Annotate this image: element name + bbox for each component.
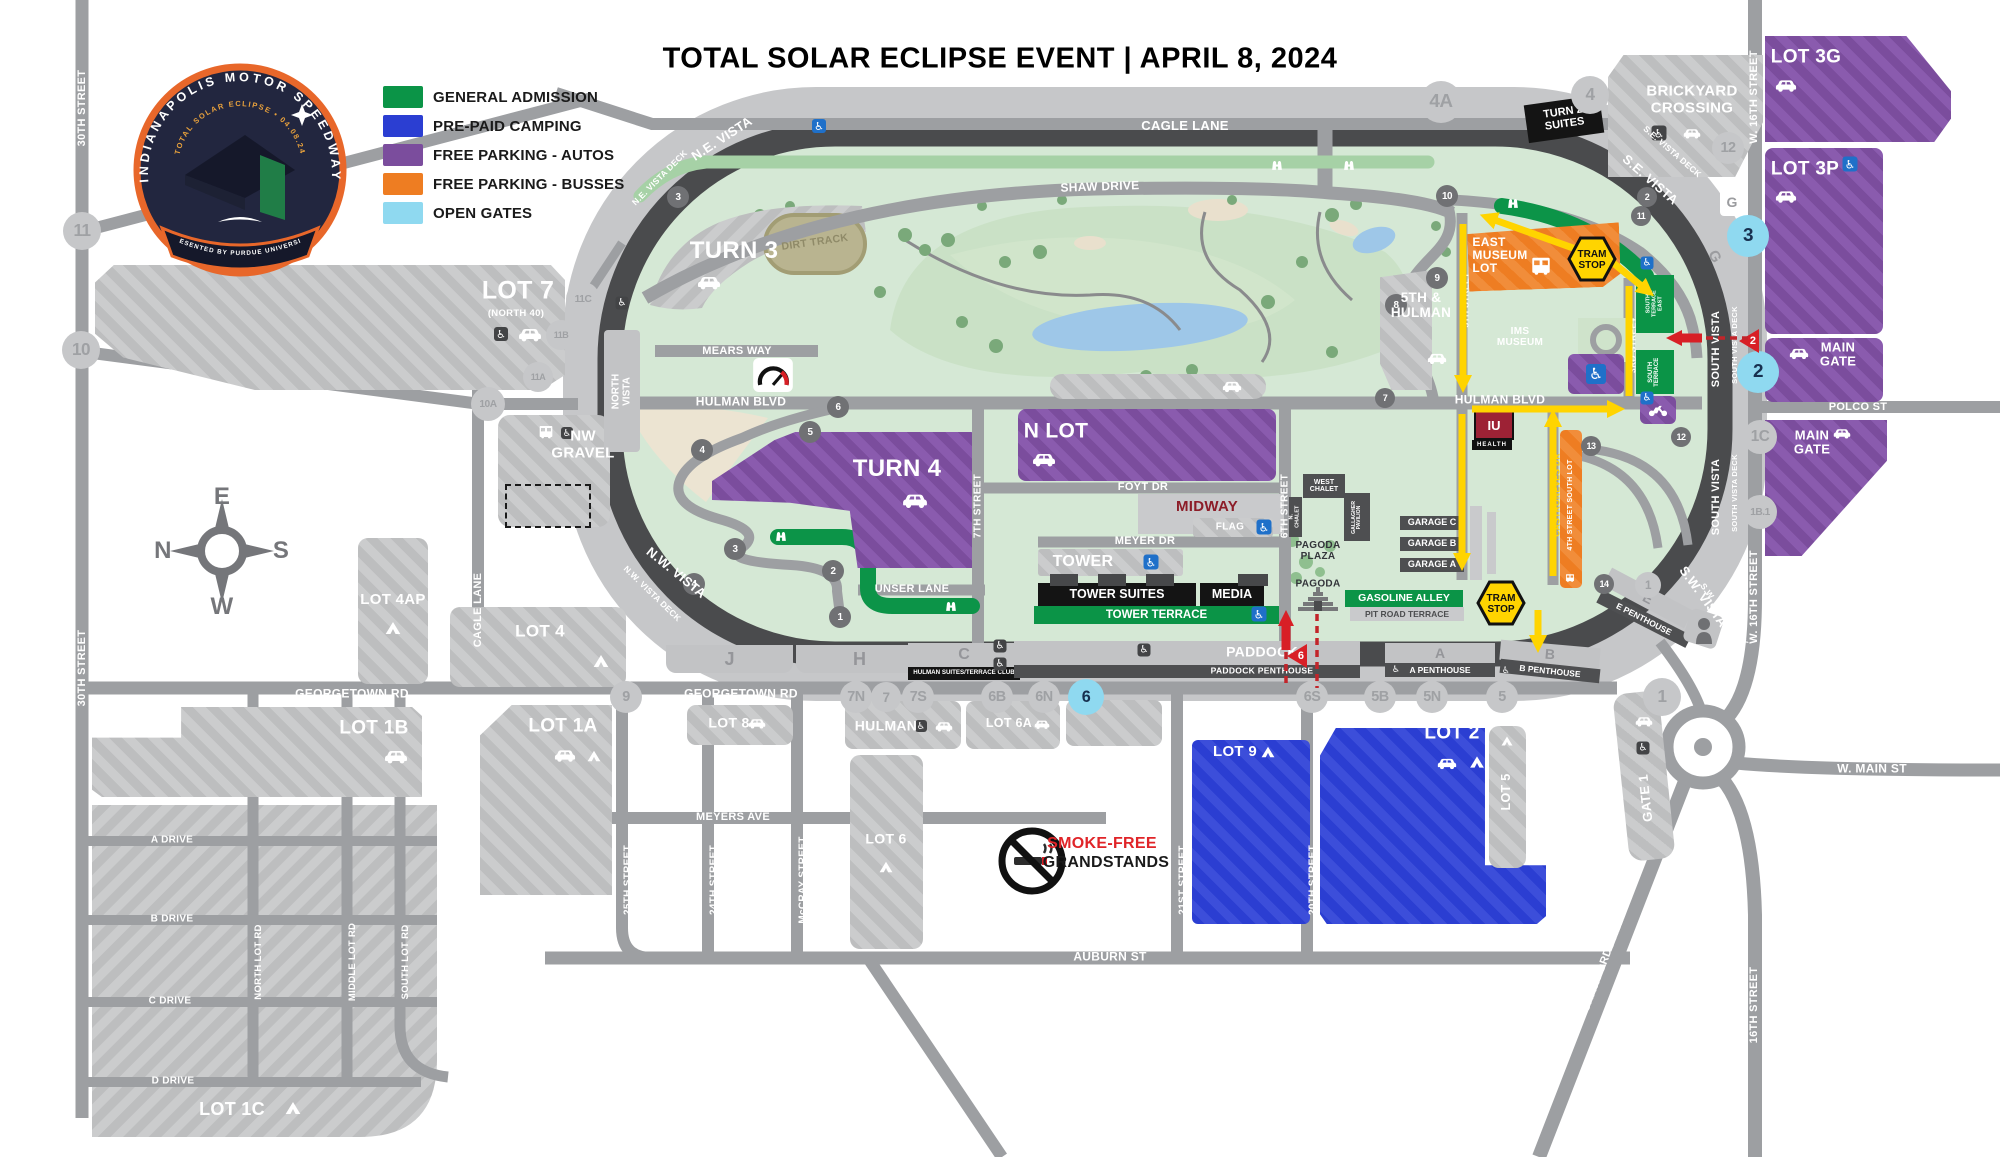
tent-icon <box>1261 746 1275 758</box>
bus-icon <box>1565 573 1575 583</box>
bar-a-penthouse-label: A PENTHOUSE <box>1409 666 1470 675</box>
stand-b-label: B <box>1544 646 1555 662</box>
binoc-icon <box>945 601 958 612</box>
suite-bump-2 <box>1098 574 1126 586</box>
tgate-2-label: 2 <box>1645 192 1650 202</box>
label-middle-lot-rd: MIDDLE LOT RD <box>348 923 358 1001</box>
bar-garage-c: GARAGE C <box>1400 516 1464 530</box>
nw-gravel-dash-box <box>505 484 591 528</box>
label-tower: TOWER <box>1053 553 1114 571</box>
gauge-icon <box>753 358 793 392</box>
gate-5b-label: 5B <box>1371 689 1388 705</box>
label-w16-top: W. 16TH STREET <box>1748 50 1760 143</box>
gate-6n: 6N <box>1028 681 1060 713</box>
gate-9-label: 9 <box>622 689 630 705</box>
binoc-top-2 <box>1343 160 1356 171</box>
label-a-drive: A DRIVE <box>151 835 193 846</box>
label-castroneves: CASTRONEVES DR <box>1552 453 1561 537</box>
legend-label-1: PRE-PAID CAMPING <box>433 118 582 135</box>
chip-lot-3p: ♿ <box>1843 157 1858 172</box>
tgate-13: 13 <box>1581 436 1601 456</box>
gate-4a-label: 4A <box>1429 91 1452 113</box>
tgate-9-label: 9 <box>1435 273 1440 284</box>
gate-5n: 5N <box>1416 681 1448 713</box>
tgate-7-label: 7 <box>1383 393 1388 403</box>
label-n-lot: N LOT <box>1024 419 1089 442</box>
label-5th-hulman: 5TH & HULMAN <box>1391 291 1451 321</box>
gate-1c: 1C <box>1743 420 1777 454</box>
binoc-top-1 <box>1271 160 1284 171</box>
car-icon <box>384 748 408 764</box>
gate-1-label: 1 <box>1657 687 1666 707</box>
car-5th-hulman <box>1427 351 1447 364</box>
label-7th-street: 7TH STREET <box>973 474 984 538</box>
tgate-14: 14 <box>1594 574 1614 594</box>
page-title: TOTAL SOLAR ECLIPSE EVENT | APRIL 8, 202… <box>663 43 1338 76</box>
label-ims-museum: IMS MUSEUM <box>1497 326 1543 348</box>
chip-c-stand-1: ♿ <box>994 640 1007 653</box>
compass-w: W <box>211 594 234 620</box>
stand-north-vista-label: NORTH VISTA <box>612 373 633 409</box>
tgate-10: 10 <box>1436 185 1458 207</box>
gate-5b: 5B <box>1364 681 1396 713</box>
flag-gate-2: 2 <box>1739 329 1759 353</box>
chip-north-vista: ♿ <box>616 297 629 310</box>
car-icon <box>748 717 766 729</box>
label-25th: 25TH STREET <box>623 845 634 915</box>
car-lot-3g <box>1775 78 1797 93</box>
tgate-3: 3 <box>667 186 689 208</box>
car-icon <box>1032 451 1056 467</box>
label-d-drive: D DRIVE <box>152 1076 195 1087</box>
gate-3-open: 3 <box>1727 215 1769 257</box>
car-icon <box>902 491 928 508</box>
label-turn-3: TURN 3 <box>690 238 778 264</box>
tgate-3b-label: 3 <box>733 544 738 555</box>
label-lot-4ap: LOT 4AP <box>360 592 425 609</box>
gate-4-label: 4 <box>1585 85 1594 105</box>
gauge-icon <box>753 358 793 392</box>
gate-10-label: 10 <box>72 340 90 360</box>
tgate-2b-label: 2 <box>831 566 836 577</box>
label-21st: 21ST STREET <box>1178 845 1189 914</box>
label-20th: 20TH STREET <box>1308 845 1319 915</box>
car-lot-7 <box>518 326 542 342</box>
label-south-vista-2: SOUTH VISTA <box>1710 459 1722 535</box>
car-icon <box>1833 427 1851 439</box>
gate-11c-label: 11C <box>575 294 592 305</box>
label-lot-6: LOT 6 <box>865 831 906 846</box>
label-lot-1b: LOT 1B <box>339 719 408 740</box>
chip-flag-stand: ♿ <box>1257 520 1272 535</box>
car-main-gate-upper <box>1789 346 1809 359</box>
label-dirt-track: DIRT TRACK <box>781 233 849 254</box>
bar-south-terrace-east-label: SOUTH TERRACE EAST <box>1646 291 1663 318</box>
legend: GENERAL ADMISSIONPRE-PAID CAMPINGFREE PA… <box>383 86 624 231</box>
bus-4th-street <box>1565 573 1575 583</box>
label-nw-gravel: NW GRAVEL <box>551 429 614 462</box>
legend-label-4: OPEN GATES <box>433 205 532 222</box>
gate-11a: 11A <box>523 362 553 392</box>
car-lakeside <box>1222 379 1242 392</box>
bar-west-chalet-label: WEST CHALET <box>1310 479 1338 494</box>
tent-icon <box>385 621 401 634</box>
label-georgetown-2: GEORGETOWN RD <box>684 687 798 700</box>
moto-lot-icon <box>1648 403 1668 416</box>
car-lot-1b <box>384 748 408 764</box>
label-cagle-top: CAGLE LANE <box>1141 119 1229 133</box>
bus-icon <box>1530 255 1552 277</box>
chip-lot-7: ♿ <box>494 327 508 341</box>
car-gate-1-lot <box>1635 715 1653 727</box>
bar-south-terrace: SOUTH TERRACE <box>1636 350 1674 394</box>
label-30th-street-top: 30TH STREET <box>76 70 88 147</box>
label-lot-4: LOT 4 <box>515 623 565 642</box>
label-north-lot-rd: NORTH LOT RD <box>254 924 264 999</box>
gate-11-label: 11 <box>73 221 90 241</box>
label-east-museum-lot: EAST MUSEUM LOT <box>1472 236 1527 276</box>
gate-6n-label: 6N <box>1035 689 1052 705</box>
chip-paddock: ♿ <box>1138 644 1151 657</box>
gate-2-open: 2 <box>1737 351 1779 393</box>
binoc-unser <box>945 601 958 612</box>
tgate-13-label: 13 <box>1586 441 1595 451</box>
label-lot-7: LOT 7 <box>482 277 554 305</box>
label-lot-hulman: HULMAN <box>855 718 917 733</box>
label-meyer-dr: MEYER DR <box>1115 535 1175 547</box>
tgate-12-label: 12 <box>1676 432 1685 442</box>
label-c-drive: C DRIVE <box>149 996 192 1007</box>
gate-1b1-label: 1B.1 <box>1750 507 1770 518</box>
gate-11c: 11C <box>566 282 600 316</box>
chip-c-stand-2: ♿ <box>994 658 1007 671</box>
label-brickyard: BRICKYARD CROSSING <box>1646 84 1737 117</box>
tgate-5: 5 <box>799 421 821 443</box>
label-5th-street: 5TH STREET <box>1461 273 1470 328</box>
car-lot-hulman <box>935 720 953 732</box>
label-3rd-street: 3RD STREET <box>1628 317 1637 373</box>
legend-item-3: FREE PARKING - BUSSES <box>383 173 624 195</box>
label-lot-8: LOT 8 <box>708 715 749 730</box>
car-lot-1a <box>554 748 576 763</box>
label-south-lot-rd: SOUTH LOT RD <box>401 925 411 1000</box>
gate-6s-label: 6S <box>1304 689 1321 705</box>
legend-swatch-4 <box>383 202 423 224</box>
label-lot-5: LOT 5 <box>1500 774 1514 811</box>
gate-1: 1 <box>1643 678 1681 716</box>
label-polco: POLCO ST <box>1829 401 1888 413</box>
tgate-3b: 3 <box>724 538 746 560</box>
bar-south-terrace-label: SOUTH TERRACE <box>1649 357 1662 386</box>
gate-10: 10 <box>62 331 100 369</box>
gate-1c-label: 1C <box>1751 428 1770 446</box>
tgate-6: 6 <box>827 396 849 418</box>
gate-11a-label: 11A <box>531 372 546 382</box>
chip-gate-1-lot: ♿ <box>1637 742 1650 755</box>
car-lot-3p <box>1775 189 1797 204</box>
car-turn-4 <box>902 491 928 508</box>
bar-garage-b-label: GARAGE B <box>1408 539 1457 548</box>
gate-6b: 6B <box>981 681 1013 713</box>
bar-garage-c-label: GARAGE C <box>1408 518 1457 527</box>
gate-4: 4 <box>1571 76 1609 114</box>
chip-ne-vista: ♿ <box>812 119 826 133</box>
bar-garage-a: GARAGE A <box>1400 558 1464 572</box>
ims-eclipse-logo: INDIANAPOLIS MOTOR SPEEDWAY TOTAL SOLAR … <box>130 60 350 280</box>
legend-item-0: GENERAL ADMISSION <box>383 86 624 108</box>
label-lot-1c: LOT 1C <box>199 1100 265 1120</box>
tent-lot-6 <box>879 861 893 873</box>
binoc-icon <box>775 531 788 542</box>
iu-health-sign: IUHEALTH <box>1474 410 1514 450</box>
legend-swatch-1 <box>383 115 423 137</box>
car-icon <box>1775 78 1797 93</box>
gate-6b-label: 6B <box>988 689 1005 705</box>
label-paddock-penthouse: PADDOCK PENTHOUSE <box>1211 666 1314 675</box>
gate-11b: 11B <box>546 320 576 350</box>
gate-2-open-label: 2 <box>1753 361 1763 383</box>
legend-swatch-0 <box>383 86 423 108</box>
label-grandstands: GRANDSTANDS <box>1043 854 1170 872</box>
tgate-2b: 2 <box>822 560 844 582</box>
label-ne-vista: N.E. VISTA <box>689 114 755 164</box>
legend-label-3: FREE PARKING - BUSSES <box>433 176 624 193</box>
gate-7n: 7N <box>840 681 872 713</box>
chip-tower: ♿ <box>1144 555 1159 570</box>
gate-7-label: 7 <box>882 690 889 705</box>
bar-b-penthouse-label: B PENTHOUSE <box>1519 663 1581 678</box>
label-main-gate-upper: MAIN GATE <box>1820 341 1856 370</box>
tgate-12: 12 <box>1671 427 1691 447</box>
bar-media: MEDIA <box>1200 583 1264 606</box>
bar-pit-road-terrace-label: PIT ROAD TERRACE <box>1365 610 1449 619</box>
car-icon <box>1683 127 1701 139</box>
gate-9: 9 <box>610 681 642 713</box>
car-lot-2 <box>1437 756 1457 769</box>
tgate-3-label: 3 <box>676 192 681 203</box>
bar-pit-road-terrace: PIT ROAD TERRACE <box>1350 607 1464 621</box>
compass-s: S <box>273 538 289 564</box>
bar-tower-terrace: TOWER TERRACE <box>1034 606 1279 624</box>
car-icon <box>697 274 721 290</box>
legend-item-4: OPEN GATES <box>383 202 624 224</box>
suite-bump-3 <box>1146 574 1174 586</box>
gate-6-open: 6 <box>1068 679 1104 715</box>
label-meyers: MEYERS AVE <box>696 811 770 823</box>
label-south-vista-deck-1: SOUTH VISTA DECK <box>1731 306 1739 384</box>
legend-swatch-3 <box>383 173 423 195</box>
gate-6s: 6S <box>1296 681 1328 713</box>
stand-h-label: H <box>853 650 866 669</box>
tgate-11-label: 11 <box>1637 211 1646 221</box>
tent-lot-5 <box>1501 736 1513 746</box>
car-icon <box>1775 189 1797 204</box>
tgate-1b-label: 1 <box>838 612 843 623</box>
eclipse-event-map: NORTH VISTAJHCHULMAN SUITES/TERRACE CLUB… <box>0 0 2000 1157</box>
bar-west-chalet: WEST CHALET <box>1303 474 1345 498</box>
label-midway: MIDWAY <box>1176 499 1238 516</box>
bar-garage-b: GARAGE B <box>1400 537 1464 551</box>
tent-lot-4ap <box>385 621 401 634</box>
chip-accessible-lot: ♿ <box>1586 364 1606 384</box>
car-icon <box>1222 379 1242 392</box>
label-lot-9: LOT 9 <box>1213 744 1257 761</box>
bar-a-penthouse: A PENTHOUSE <box>1385 663 1495 677</box>
bar-gallagher-pavilion-label: GALLAGHER PAVILION <box>1352 501 1363 534</box>
tent-lot-1a <box>587 750 601 762</box>
label-auburn: AUBURN ST <box>1073 950 1146 963</box>
car-icon <box>1437 756 1457 769</box>
g-box: G <box>1720 188 1744 216</box>
car-icon <box>518 326 542 342</box>
label-main-gate-lower: MAIN GATE <box>1794 429 1830 458</box>
label-lot-1a: LOT 1A <box>528 717 597 738</box>
label-w16-mid: W. 16TH STREET <box>1748 550 1760 643</box>
gate-11b-label: 11B <box>554 330 569 340</box>
gate-10a: 10A <box>471 387 505 421</box>
tgate-10-label: 10 <box>1442 191 1452 202</box>
binoc-turn4 <box>775 531 788 542</box>
bar-media-label: MEDIA <box>1212 588 1252 601</box>
car-lot-8 <box>748 717 766 729</box>
gate-7: 7 <box>871 682 901 712</box>
lot-9 <box>1192 740 1310 924</box>
compass-n: N <box>154 538 172 564</box>
gate-track-1e: 1 <box>1635 572 1661 598</box>
tent-icon <box>1470 756 1485 769</box>
label-g-stand: G <box>1704 248 1724 267</box>
chip-tower-terrace: ♿ <box>1252 607 1267 622</box>
tent-icon <box>285 1101 301 1114</box>
tgate-7: 7 <box>1375 388 1395 408</box>
label-lot-2: LOT 2 <box>1424 724 1479 745</box>
binoc-turn2 <box>1507 198 1520 209</box>
tent-icon <box>1501 736 1513 746</box>
label-south-vista-deck-2: SOUTH VISTA DECK <box>1731 454 1739 532</box>
tent-lot-4 <box>593 654 609 667</box>
label-georgetown-1: GEORGETOWN RD <box>295 687 409 700</box>
compass-e: E <box>214 484 230 510</box>
gate-11: 11 <box>63 212 101 250</box>
car-icon <box>935 720 953 732</box>
label-mccray: McCRAY STREET <box>798 836 809 923</box>
label-24th: 24TH STREET <box>709 845 720 915</box>
suite-bump-1 <box>1050 574 1078 586</box>
label-hulman-blvd-2: HULMAN BLVD <box>1455 393 1545 406</box>
label-crawfordsville: CRAWFORDSVILLE RD <box>1580 890 1637 1013</box>
label-pagoda: PAGODA <box>1296 579 1341 590</box>
wc-b-penthouse: ♿ <box>1501 666 1510 677</box>
label-turn-4: TURN 4 <box>853 456 941 482</box>
bar-paddock <box>1014 641 1360 665</box>
tent-icon <box>587 750 601 762</box>
car-icon <box>554 748 576 763</box>
car-icon <box>1635 715 1653 727</box>
label-4th-street-lot: 4TH STREET SOUTH LOT <box>1567 459 1575 550</box>
car-icon <box>1427 351 1447 364</box>
gate-5n-label: 5N <box>1423 689 1440 705</box>
car-n-lot <box>1032 451 1056 467</box>
stand-a-label: A <box>1435 646 1445 661</box>
iu-logo: IU <box>1474 410 1514 440</box>
bar-gasoline-alley-label: GASOLINE ALLEY <box>1358 593 1450 604</box>
bar-n-chalet-label: N. CHALET <box>1290 506 1302 528</box>
gate-10a-label: 10A <box>479 399 496 410</box>
label-smoke-free: SMOKE-FREE <box>1047 835 1157 853</box>
tgate-9: 9 <box>1426 267 1448 289</box>
gate-1b1: 1B.1 <box>1743 495 1777 529</box>
label-south-vista-1: SOUTH VISTA <box>1710 311 1722 387</box>
label-foyt-dr: FOYT DR <box>1118 481 1168 493</box>
tent-icon <box>593 654 609 667</box>
gate-6-open-label: 6 <box>1082 688 1091 707</box>
lot-4ap <box>358 538 428 684</box>
label-paddock: PADDOCK <box>1226 644 1298 659</box>
bar-hulman-suites-label: HULMAN SUITES/TERRACE CLUB <box>913 670 1014 677</box>
tent-icon <box>879 861 893 873</box>
bus-east-museum <box>1530 255 1552 277</box>
car-icon <box>1034 719 1050 730</box>
gate-track-1e-label: 1 <box>1645 579 1651 592</box>
tgate-11: 11 <box>1631 206 1651 226</box>
lot-6 <box>850 755 923 949</box>
bar-tower-suites: TOWER SUITES <box>1038 583 1196 606</box>
label-flag: FLAG <box>1216 522 1244 533</box>
gate-5: 5 <box>1486 681 1518 713</box>
bar-garage-a-label: GARAGE A <box>1408 560 1456 569</box>
bar-tower-terrace-label: TOWER TERRACE <box>1106 609 1207 621</box>
flag-gate-2-label: 2 <box>1750 335 1759 347</box>
tgate-14-label: 14 <box>1599 579 1608 589</box>
g-box-label: G <box>1727 195 1738 210</box>
label-16th-bottom: 16TH STREET <box>1748 967 1760 1044</box>
logo-tower <box>260 155 285 220</box>
gate-12: 12 <box>1712 132 1744 164</box>
moto-icon <box>1648 403 1668 416</box>
tgate-5-label: 5 <box>808 427 813 438</box>
suite-bump-4 <box>1238 574 1268 586</box>
label-lot-3g: LOT 3G <box>1771 48 1841 69</box>
car-main-gate-lower <box>1833 427 1851 439</box>
label-shaw-drive: SHAW DRIVE <box>1060 179 1139 195</box>
gate-4a: 4A <box>1420 81 1462 123</box>
gate-3-open-label: 3 <box>1743 225 1753 247</box>
gate-7n-label: 7N <box>847 689 864 705</box>
label-pagoda-plaza: PAGODA PLAZA <box>1296 540 1341 562</box>
tgate-4-label: 4 <box>700 445 705 456</box>
stand-5th-hulman <box>1380 270 1432 390</box>
label-b-drive: B DRIVE <box>151 914 194 925</box>
label-hulman-blvd-1: HULMAN BLVD <box>696 395 786 408</box>
binoc-icon <box>1343 160 1356 171</box>
wc-a-penthouse: ♿ <box>1392 665 1400 675</box>
legend-label-0: GENERAL ADMISSION <box>433 89 598 106</box>
label-30th-street-bottom: 30TH STREET <box>76 630 88 707</box>
tent-lot-2 <box>1470 756 1485 769</box>
car-brickyard <box>1683 127 1701 139</box>
car-icon <box>1789 346 1809 359</box>
iu-health-label: HEALTH <box>1472 440 1512 450</box>
tgate-6-label: 6 <box>836 402 841 413</box>
car-lot-6a <box>1034 719 1050 730</box>
legend-item-1: PRE-PAID CAMPING <box>383 115 624 137</box>
stand-c-label: C <box>958 647 970 664</box>
stand-h: H <box>796 645 923 673</box>
bar-gasoline-alley: GASOLINE ALLEY <box>1345 590 1463 607</box>
tgate-1b: 1 <box>829 606 851 628</box>
stand-j-label: J <box>724 650 734 669</box>
gate-7s: 7S <box>902 681 934 713</box>
